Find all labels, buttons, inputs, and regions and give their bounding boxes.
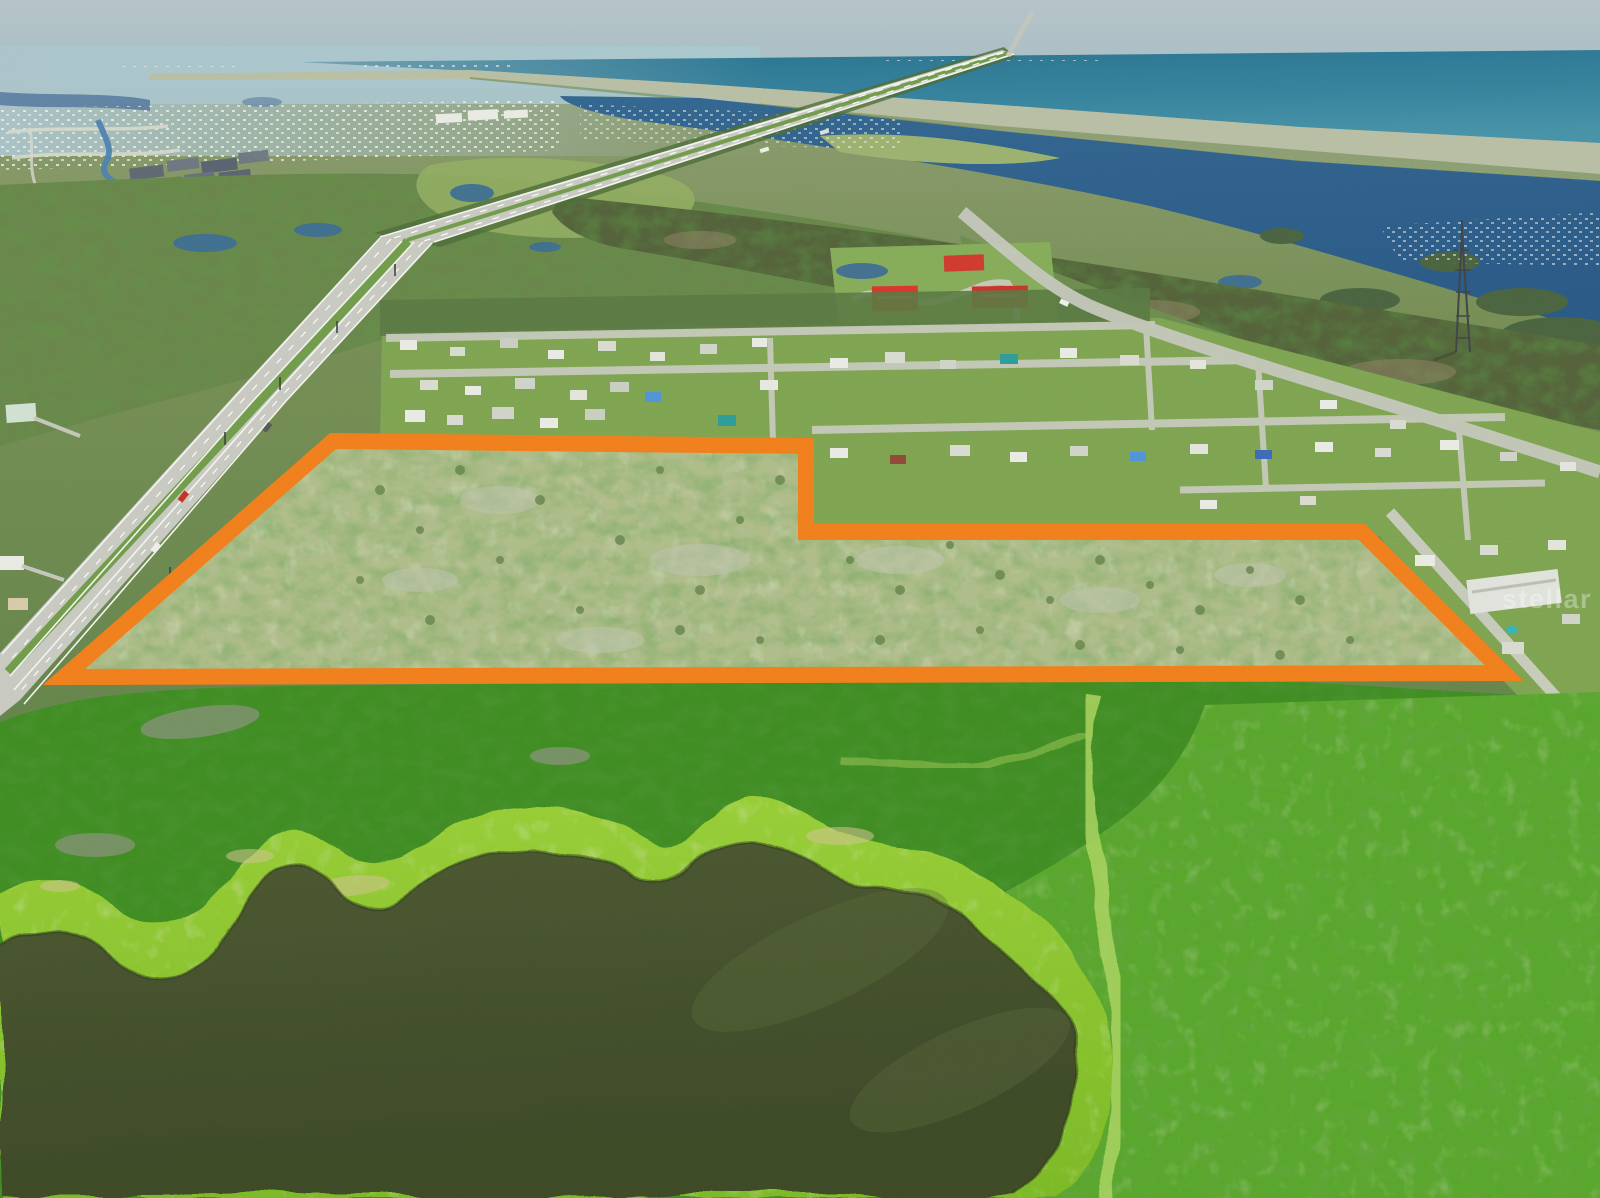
- aerial-photo: stellar MLS: [0, 0, 1600, 1198]
- film-grain: [0, 0, 1600, 1198]
- screenshot-root: stellar MLS: [0, 0, 1600, 1198]
